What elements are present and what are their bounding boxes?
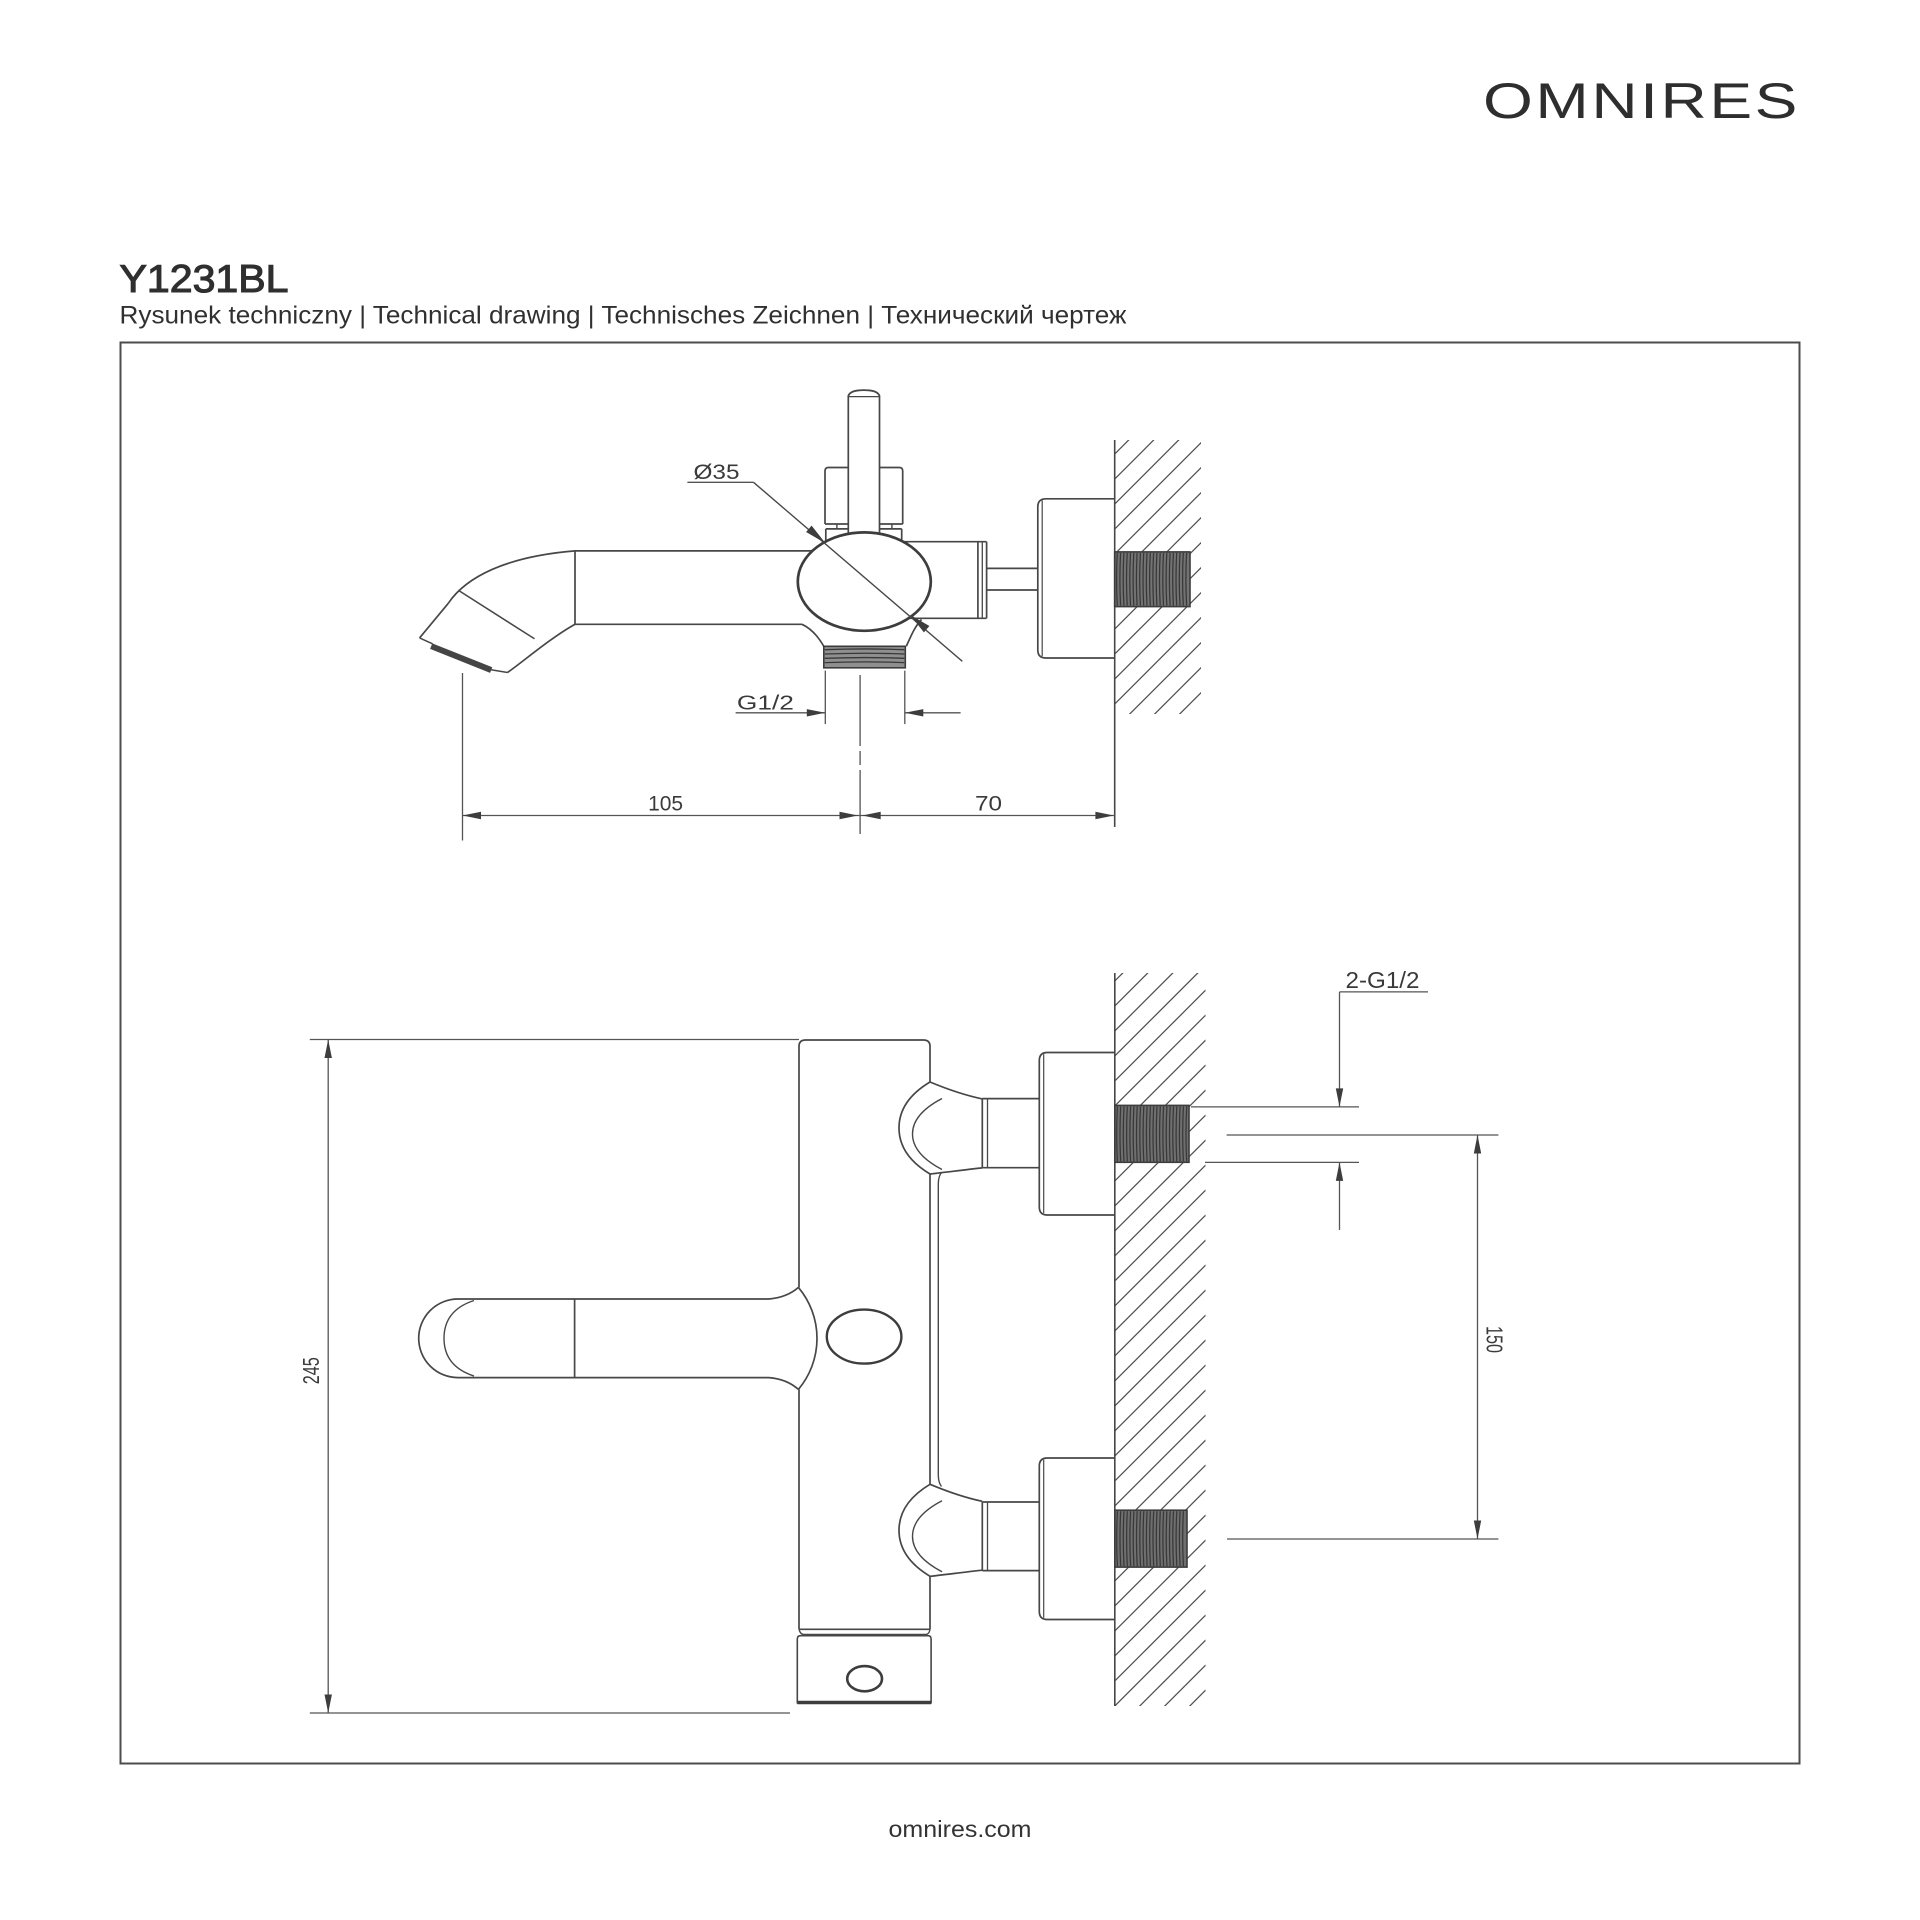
svg-text:omnires.com: omnires.com bbox=[889, 1816, 1032, 1842]
svg-text:70: 70 bbox=[975, 792, 1002, 816]
svg-text:Y1231BL: Y1231BL bbox=[120, 258, 289, 301]
svg-text:105: 105 bbox=[648, 792, 683, 816]
svg-text:G1/2: G1/2 bbox=[737, 692, 794, 715]
svg-text:Rysunek techniczny | Technical: Rysunek techniczny | Technical drawing |… bbox=[120, 301, 1127, 329]
svg-text:OMNIRES: OMNIRES bbox=[1483, 73, 1800, 129]
svg-text:Ø35: Ø35 bbox=[694, 460, 740, 484]
svg-text:245: 245 bbox=[298, 1357, 324, 1384]
svg-text:150: 150 bbox=[1482, 1326, 1508, 1353]
svg-text:2-G1/2: 2-G1/2 bbox=[1346, 967, 1420, 993]
